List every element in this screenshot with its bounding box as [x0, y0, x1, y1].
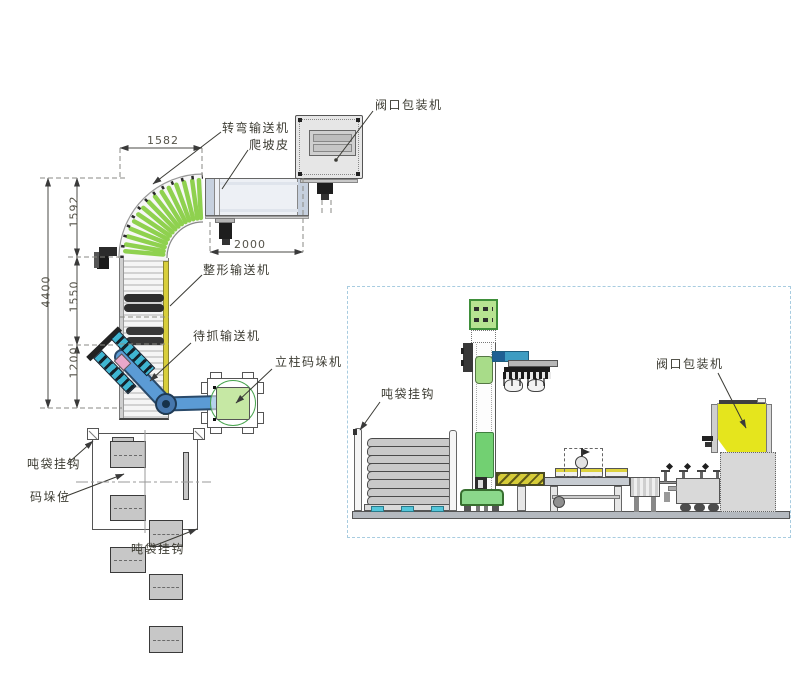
dim-1550: 1550 — [69, 277, 80, 317]
dim-4400: 4400 — [41, 272, 52, 312]
label-grab-wait-conveyor: 待抓输送机 — [193, 330, 261, 343]
construction-lines — [76, 430, 211, 533]
label-bag-hook-left: 吨袋挂钩 — [27, 458, 81, 471]
dim-2000: 2000 — [220, 239, 280, 250]
label-shaping-conveyor: 整形输送机 — [203, 264, 271, 277]
extension-lines — [40, 148, 331, 408]
label-bag-hook-side: 吨袋挂钩 — [381, 388, 435, 401]
label-bag-hook-bottom: 吨袋挂钩 — [131, 543, 185, 556]
dim-1592: 1592 — [69, 192, 80, 232]
label-turn-conveyor: 转弯输送机 — [222, 122, 290, 135]
label-valve-packer-plan: 阀口包装机 — [375, 99, 443, 112]
label-valve-packer-side: 阀口包装机 — [656, 358, 724, 371]
dimension-lines — [48, 148, 303, 408]
dim-1200: 1200 — [69, 343, 80, 383]
engineering-drawing: 转弯输送机 爬坡皮 阀口包装机 整形输送机 待抓输送机 立柱码垛机 吨袋挂钩 码… — [0, 0, 800, 694]
label-stack-position: 码垛位 — [30, 491, 71, 504]
label-column-palletizer: 立柱码垛机 — [275, 356, 343, 369]
label-climb-belt: 爬坡皮 — [249, 139, 290, 152]
dim-1582: 1582 — [133, 135, 193, 146]
